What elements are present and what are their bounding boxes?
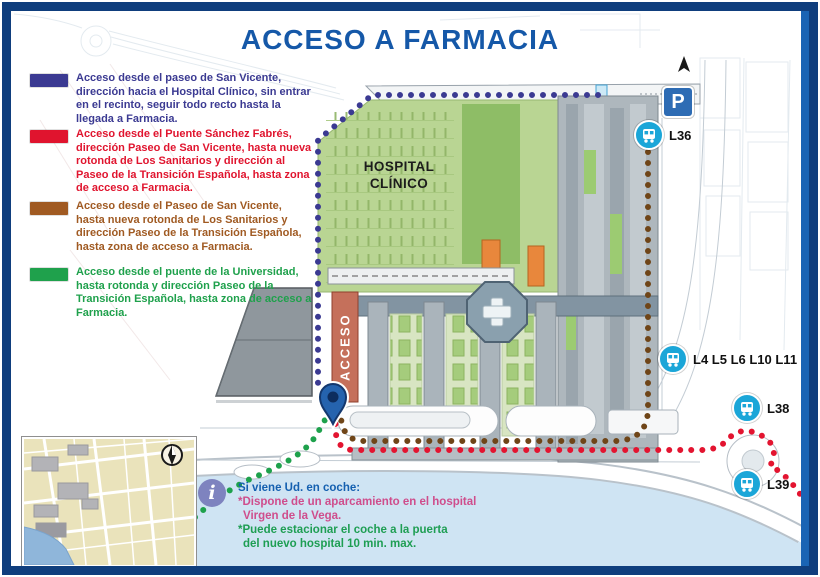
bus-stop-label: L39 (767, 477, 789, 492)
frame-inner-stripe (801, 11, 809, 566)
legend-text-brown: Acceso desde el Paseo de San Vicente, ha… (76, 200, 312, 254)
compass-icon (162, 445, 182, 465)
bus-icon (634, 120, 664, 150)
traffic-island (234, 465, 270, 479)
bus-icon (732, 469, 762, 499)
bus-stop-l36: L36 (634, 120, 691, 150)
page-title: ACCESO A FARMACIA (180, 24, 620, 56)
inset-city-map (22, 437, 196, 567)
bus-stop-label: L38 (767, 401, 789, 416)
access-map-poster: ACCESO A FARMACIA Acceso desde el paseo … (0, 0, 820, 577)
legend-item-blue: Acceso desde el paseo de San Vicente, di… (30, 72, 312, 126)
info-line-virgen: Virgen de la Vega. (238, 509, 518, 523)
info-line-estacionar: *Puede estacionar el coche a la puerta (238, 523, 518, 537)
parking-icon: P (662, 86, 694, 118)
info-icon: i (198, 479, 226, 507)
north-arrow-icon (677, 56, 691, 73)
info-line-coche: Si viene Ud. en coche: (238, 481, 518, 495)
info-line-10min: del nuevo hospital 10 min. max. (238, 537, 518, 551)
hospital-label-line1: HOSPITAL (326, 158, 472, 175)
bus-stop-label: L4 L5 L6 L10 L11 (693, 352, 797, 367)
legend-swatch-blue (30, 74, 68, 87)
hospital-label-line2: CLÍNICO (326, 175, 472, 192)
bus-icon (658, 344, 688, 374)
legend-item-brown: Acceso desde el Paseo de San Vicente, ha… (30, 200, 312, 254)
acceso-label: ACCESO (332, 293, 358, 401)
bus-stop-l39: L39 (732, 469, 789, 499)
legend-item-green: Acceso desde el puente de la Universidad… (30, 266, 312, 320)
legend-text-red: Acceso desde el Puente Sánchez Fabrés, d… (76, 128, 312, 196)
hospital-clinico-label: HOSPITAL CLÍNICO (326, 158, 472, 192)
info-line-parking: *Dispone de un aparcamiento en el hospit… (238, 495, 518, 509)
legend-item-red: Acceso desde el Puente Sánchez Fabrés, d… (30, 128, 312, 196)
info-box: Si viene Ud. en coche: *Dispone de un ap… (238, 481, 518, 551)
legend-swatch-brown (30, 202, 68, 215)
bus-stop-l38: L38 (732, 393, 789, 423)
legend-text-green: Acceso desde el puente de la Universidad… (76, 266, 312, 320)
legend-swatch-red (30, 130, 68, 143)
legend-swatch-green (30, 268, 68, 281)
bus-stop-l4-l5-l6-l10-l11: L4 L5 L6 L10 L11 (658, 344, 797, 374)
bus-icon (732, 393, 762, 423)
legend-text-blue: Acceso desde el paseo de San Vicente, di… (76, 72, 312, 126)
bus-stop-label: L36 (669, 128, 691, 143)
